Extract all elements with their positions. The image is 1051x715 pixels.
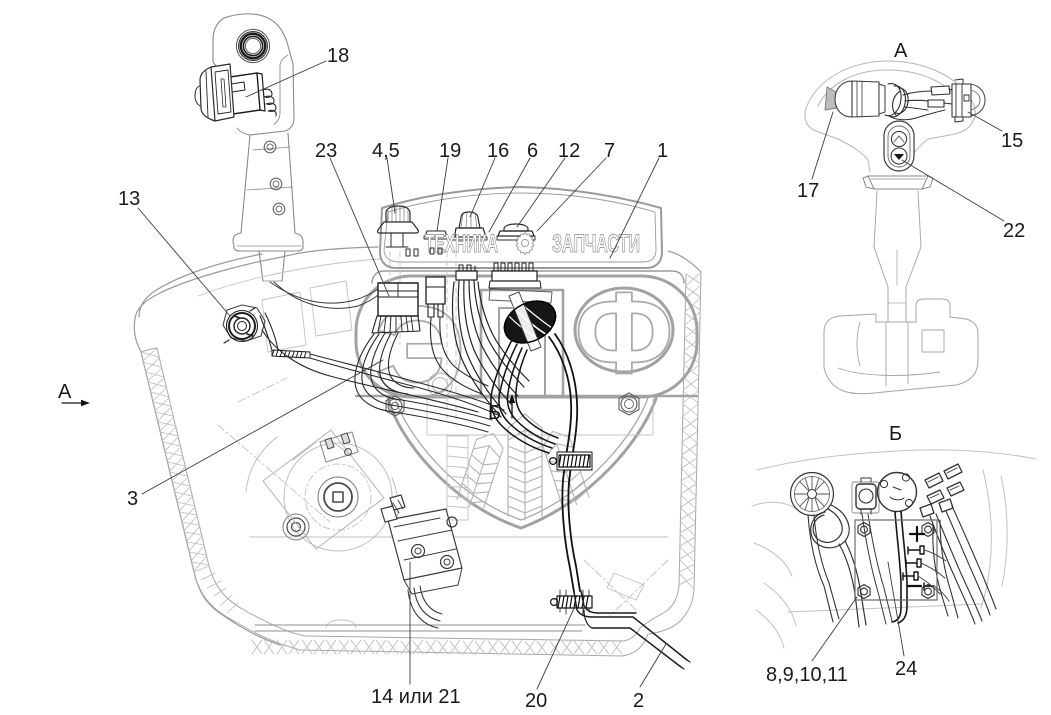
svg-text:19: 19 xyxy=(439,140,461,162)
svg-text:3: 3 xyxy=(127,488,138,510)
svg-text:4,5: 4,5 xyxy=(372,140,400,162)
svg-text:ЗАПЧАСТИ: ЗАПЧАСТИ xyxy=(552,230,640,258)
svg-text:20: 20 xyxy=(525,690,547,712)
svg-text:14 или 21: 14 или 21 xyxy=(371,686,461,708)
svg-text:ТЕХНИКА: ТЕХНИКА xyxy=(425,230,498,258)
svg-text:А: А xyxy=(58,381,72,403)
svg-text:24: 24 xyxy=(895,658,917,680)
svg-text:Б: Б xyxy=(488,402,501,424)
svg-text:6: 6 xyxy=(527,140,538,162)
svg-text:А: А xyxy=(894,40,908,62)
svg-text:7: 7 xyxy=(604,140,615,162)
svg-text:15: 15 xyxy=(1001,130,1023,152)
svg-text:18: 18 xyxy=(327,45,349,67)
svg-text:23: 23 xyxy=(315,140,337,162)
svg-text:17: 17 xyxy=(797,180,819,202)
svg-text:16: 16 xyxy=(487,140,509,162)
svg-text:12: 12 xyxy=(558,140,580,162)
svg-text:22: 22 xyxy=(1003,220,1025,242)
svg-text:Б: Б xyxy=(889,423,902,445)
svg-text:Ф: Ф xyxy=(574,268,673,398)
svg-text:2: 2 xyxy=(633,690,644,712)
svg-text:13: 13 xyxy=(118,188,140,210)
svg-text:8,9,10,11: 8,9,10,11 xyxy=(766,664,848,686)
svg-text:1: 1 xyxy=(657,140,668,162)
